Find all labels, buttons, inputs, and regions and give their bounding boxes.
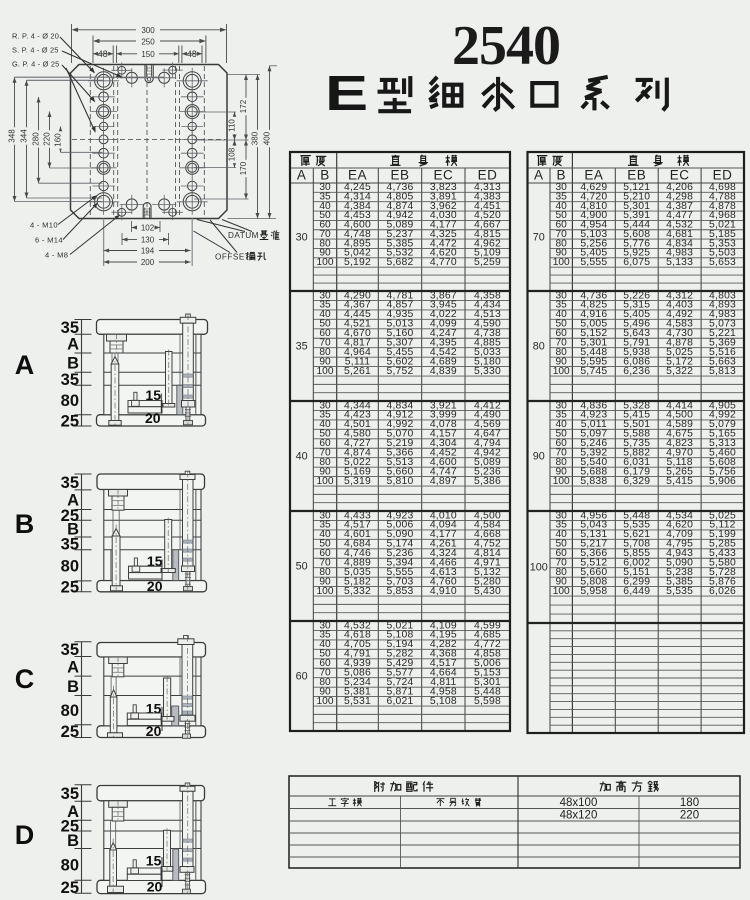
- svg-text:348: 348: [8, 129, 17, 143]
- svg-text:194: 194: [141, 247, 155, 256]
- svg-text:C: C: [15, 664, 35, 694]
- svg-text:B: B: [67, 678, 79, 696]
- svg-text:OFFSET: OFFSET: [215, 253, 250, 262]
- svg-text:180: 180: [680, 797, 699, 809]
- svg-text:5,745: 5,745: [580, 366, 607, 377]
- svg-text:50: 50: [296, 561, 308, 573]
- svg-text:160: 160: [54, 133, 63, 147]
- svg-text:5,192: 5,192: [344, 257, 371, 268]
- svg-text:5,958: 5,958: [580, 586, 607, 597]
- svg-text:5,108: 5,108: [430, 696, 457, 707]
- svg-text:100: 100: [553, 257, 570, 268]
- svg-text:90: 90: [533, 451, 545, 463]
- svg-text:B: B: [320, 168, 330, 183]
- svg-text:100: 100: [553, 586, 570, 597]
- svg-text:EB: EB: [390, 168, 409, 183]
- svg-text:80: 80: [61, 702, 79, 720]
- svg-text:A: A: [67, 658, 79, 676]
- svg-text:EA: EA: [348, 168, 367, 183]
- svg-text:4,770: 4,770: [430, 257, 457, 268]
- svg-text:15: 15: [146, 853, 162, 869]
- svg-text:A: A: [67, 336, 79, 354]
- svg-text:60: 60: [296, 671, 308, 683]
- svg-text:5,430: 5,430: [474, 586, 501, 597]
- svg-text:R. P. 4 - Ø 20: R. P. 4 - Ø 20: [12, 32, 59, 41]
- svg-text:100: 100: [317, 586, 334, 597]
- svg-text:40: 40: [296, 451, 308, 463]
- svg-text:35: 35: [61, 641, 79, 659]
- svg-text:25: 25: [61, 723, 79, 741]
- svg-text:5,531: 5,531: [344, 696, 371, 707]
- svg-text:100: 100: [317, 476, 334, 487]
- svg-text:DATUM: DATUM: [228, 231, 259, 240]
- svg-text:25: 25: [61, 578, 79, 596]
- svg-text:6 - M14: 6 - M14: [35, 236, 63, 245]
- svg-text:5,906: 5,906: [709, 476, 736, 487]
- svg-text:100: 100: [317, 366, 334, 377]
- svg-text:G. P. 4 - Ø 25: G. P. 4 - Ø 25: [12, 60, 59, 69]
- svg-text:B: B: [556, 168, 566, 183]
- svg-text:5,535: 5,535: [666, 586, 693, 597]
- svg-text:110: 110: [228, 119, 237, 132]
- svg-text:5,853: 5,853: [386, 586, 413, 597]
- svg-text:6,026: 6,026: [709, 586, 736, 597]
- svg-text:5,752: 5,752: [386, 366, 413, 377]
- svg-text:70: 70: [533, 232, 545, 244]
- svg-text:5,319: 5,319: [344, 476, 371, 487]
- svg-text:D: D: [15, 820, 35, 850]
- svg-text:25: 25: [61, 879, 79, 897]
- svg-text:5,261: 5,261: [344, 366, 371, 377]
- svg-text:2540: 2540: [452, 15, 560, 77]
- svg-text:20: 20: [147, 578, 163, 594]
- svg-text:344: 344: [20, 129, 29, 143]
- svg-text:35: 35: [61, 535, 79, 553]
- svg-text:EC: EC: [433, 168, 453, 183]
- svg-text:4,910: 4,910: [430, 586, 457, 597]
- svg-text:130: 130: [141, 236, 155, 245]
- svg-text:20: 20: [147, 878, 163, 894]
- svg-text:48x120: 48x120: [560, 810, 598, 822]
- svg-text:EB: EB: [627, 168, 646, 183]
- svg-text:102: 102: [141, 224, 155, 233]
- svg-text:5,838: 5,838: [580, 476, 607, 487]
- svg-text:100: 100: [553, 366, 570, 377]
- svg-text:B: B: [15, 509, 35, 539]
- svg-text:280: 280: [32, 132, 41, 146]
- svg-text:5,133: 5,133: [666, 257, 693, 268]
- svg-text:5,322: 5,322: [666, 366, 693, 377]
- svg-text:150: 150: [141, 50, 155, 59]
- svg-text:6,236: 6,236: [623, 366, 650, 377]
- svg-text:EC: EC: [670, 168, 690, 183]
- svg-text:20: 20: [145, 410, 161, 426]
- svg-text:48: 48: [187, 49, 197, 59]
- svg-text:5,682: 5,682: [386, 257, 413, 268]
- svg-text:4 - M10: 4 - M10: [30, 221, 58, 230]
- svg-text:80: 80: [61, 557, 79, 575]
- svg-text:200: 200: [141, 258, 155, 267]
- svg-text:300: 300: [141, 26, 155, 35]
- svg-text:ED: ED: [478, 168, 498, 183]
- svg-text:4,897: 4,897: [430, 476, 457, 487]
- svg-text:A: A: [15, 350, 35, 380]
- svg-text:172: 172: [239, 99, 248, 113]
- svg-text:80: 80: [61, 856, 79, 874]
- svg-text:35: 35: [61, 474, 79, 492]
- svg-text:6,075: 6,075: [623, 257, 650, 268]
- svg-text:35: 35: [296, 341, 308, 353]
- svg-text:A: A: [534, 168, 544, 183]
- svg-text:170: 170: [239, 161, 248, 175]
- svg-text:80: 80: [61, 392, 79, 410]
- svg-text:100: 100: [317, 696, 334, 707]
- svg-text:ED: ED: [713, 168, 733, 183]
- svg-text:6,329: 6,329: [623, 476, 650, 487]
- svg-text:6,021: 6,021: [386, 696, 413, 707]
- svg-text:20: 20: [146, 723, 162, 739]
- svg-text:5,813: 5,813: [709, 366, 736, 377]
- svg-text:400: 400: [263, 131, 272, 145]
- svg-text:108: 108: [228, 147, 237, 161]
- svg-text:35: 35: [61, 785, 79, 803]
- svg-text:5,330: 5,330: [474, 366, 501, 377]
- svg-text:5,598: 5,598: [474, 696, 501, 707]
- svg-text:250: 250: [141, 37, 155, 46]
- svg-text:35: 35: [61, 319, 79, 337]
- svg-text:30: 30: [296, 232, 308, 244]
- svg-text:25: 25: [61, 412, 79, 430]
- svg-text:380: 380: [251, 131, 260, 145]
- svg-text:EA: EA: [584, 168, 603, 183]
- svg-text:5,415: 5,415: [666, 476, 693, 487]
- svg-text:4 - M8: 4 - M8: [45, 251, 68, 260]
- svg-text:100: 100: [530, 562, 548, 574]
- svg-text:100: 100: [553, 476, 570, 487]
- svg-text:220: 220: [43, 132, 52, 146]
- svg-text:5,810: 5,810: [386, 476, 413, 487]
- svg-text:80: 80: [533, 341, 545, 353]
- svg-text:5,332: 5,332: [344, 586, 371, 597]
- svg-text:48x100: 48x100: [560, 797, 598, 809]
- svg-text:5,259: 5,259: [474, 257, 501, 268]
- svg-text:48: 48: [98, 49, 108, 59]
- svg-text:6,449: 6,449: [623, 586, 650, 597]
- svg-text:5,653: 5,653: [709, 257, 736, 268]
- svg-text:B: B: [67, 832, 79, 850]
- svg-text:220: 220: [680, 810, 699, 822]
- svg-text:A: A: [297, 168, 307, 183]
- svg-text:E: E: [325, 66, 368, 121]
- svg-text:15: 15: [146, 701, 162, 717]
- svg-text:5,386: 5,386: [474, 476, 501, 487]
- svg-text:S. P. 4 - Ø 25: S. P. 4 - Ø 25: [12, 46, 59, 55]
- svg-text:4,839: 4,839: [430, 366, 457, 377]
- svg-text:5,555: 5,555: [580, 257, 607, 268]
- svg-text:100: 100: [317, 257, 334, 268]
- svg-text:35: 35: [61, 371, 79, 389]
